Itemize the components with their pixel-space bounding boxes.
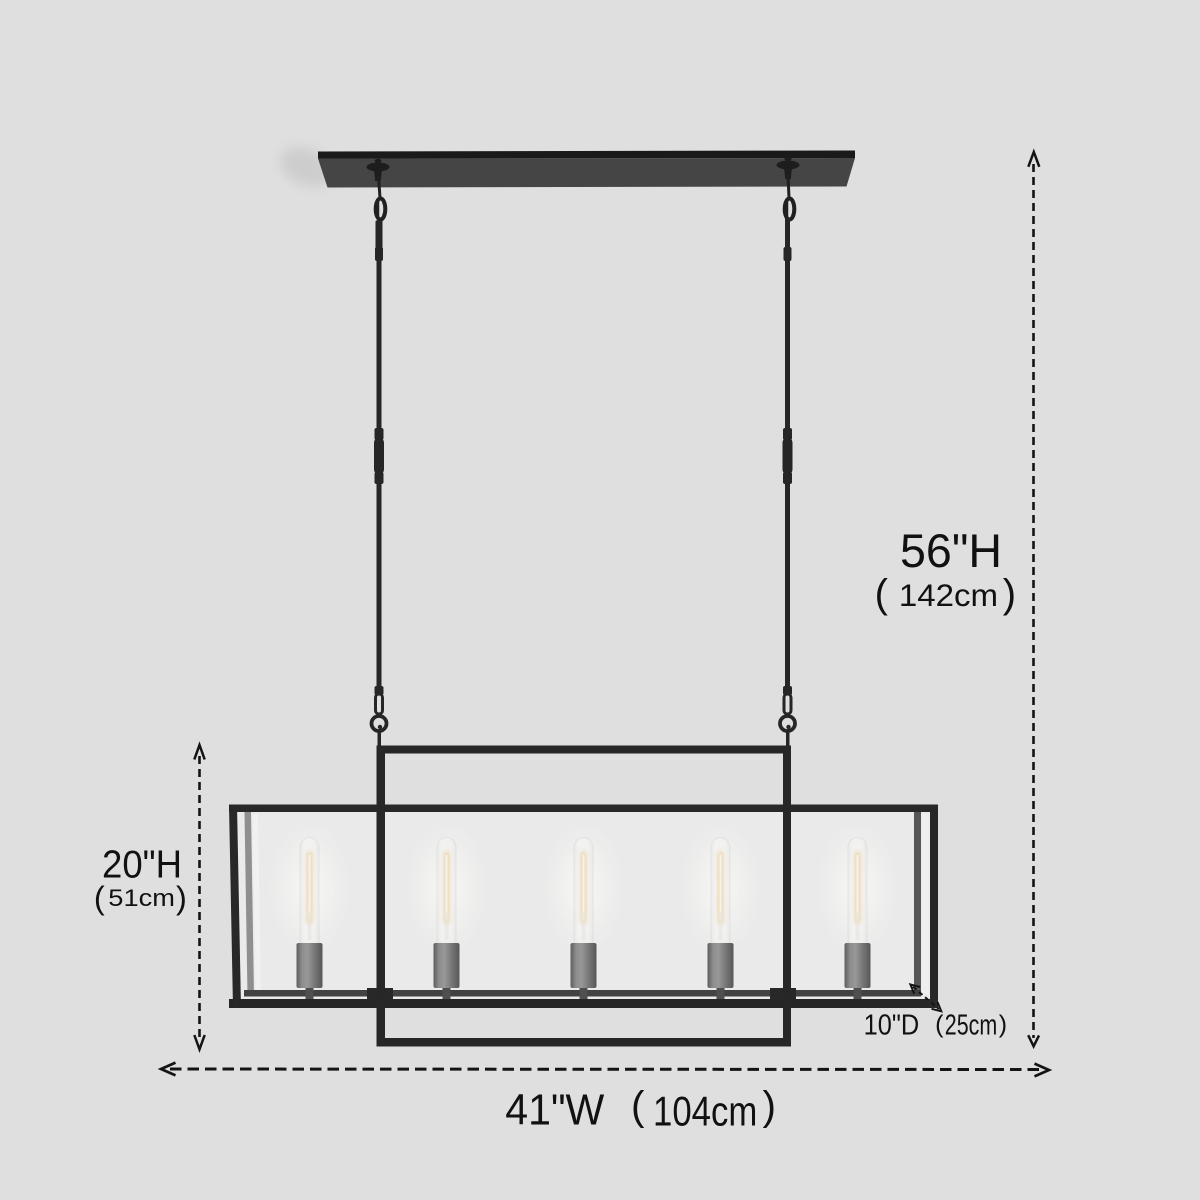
svg-text:(: ( [875, 572, 889, 616]
svg-text:20"H: 20"H [102, 843, 182, 886]
svg-text:): ) [763, 1083, 777, 1129]
svg-text:104cm: 104cm [653, 1087, 757, 1134]
svg-text:41"W: 41"W [505, 1086, 604, 1135]
svg-text:51cm: 51cm [108, 885, 175, 912]
svg-text:(: ( [631, 1083, 645, 1129]
svg-text:): ) [999, 1011, 1007, 1039]
svg-text:10"D: 10"D [864, 1010, 920, 1042]
svg-text:): ) [176, 880, 187, 916]
svg-text:): ) [1003, 572, 1016, 616]
svg-text:56"H: 56"H [900, 525, 1002, 578]
svg-text:25cm: 25cm [945, 1010, 998, 1042]
svg-text:(: ( [94, 880, 105, 916]
svg-text:(: ( [935, 1011, 944, 1039]
svg-text:142cm: 142cm [899, 577, 998, 613]
